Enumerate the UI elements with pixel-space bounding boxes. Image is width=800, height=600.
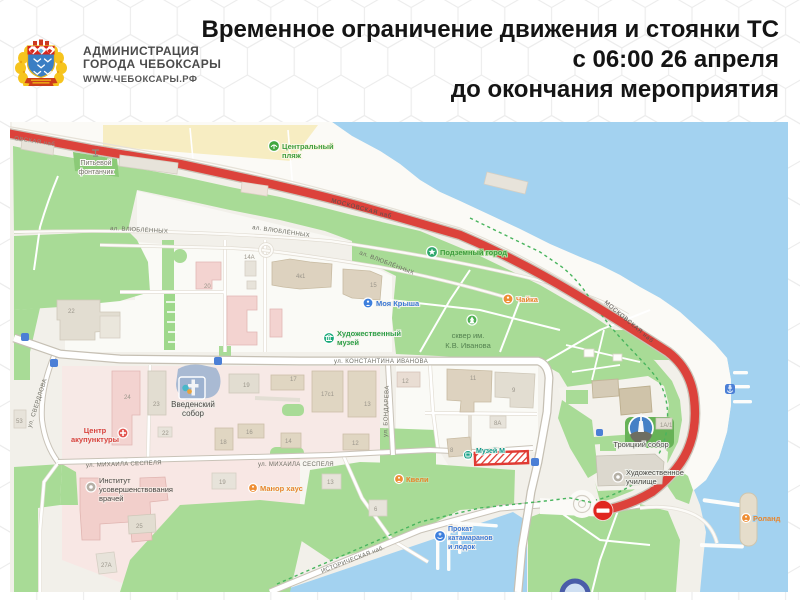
svg-text:музей: музей — [337, 338, 359, 347]
svg-text:13: 13 — [364, 402, 371, 408]
svg-text:Центр: Центр — [84, 426, 107, 435]
svg-text:Прокат: Прокат — [448, 526, 473, 533]
svg-text:Институт: Институт — [99, 476, 131, 485]
svg-text:22: 22 — [68, 309, 75, 315]
svg-text:24: 24 — [124, 395, 131, 401]
svg-text:17: 17 — [290, 377, 297, 383]
svg-text:27А: 27А — [101, 563, 112, 569]
svg-text:ул. МИХАИЛА СЕСПЕЛЯ: ул. МИХАИЛА СЕСПЕЛЯ — [258, 462, 334, 468]
svg-text:училище: училище — [626, 477, 657, 486]
svg-text:19: 19 — [219, 480, 226, 486]
svg-text:Художественный: Художественный — [337, 329, 401, 338]
svg-text:14А: 14А — [244, 255, 255, 261]
svg-text:усовершенствования: усовершенствования — [99, 485, 173, 494]
svg-text:Чайка: Чайка — [516, 295, 539, 304]
svg-text:18: 18 — [220, 440, 227, 446]
svg-text:Введенский: Введенский — [171, 400, 215, 409]
svg-text:12: 12 — [402, 379, 409, 385]
svg-text:фонтанчик: фонтанчик — [78, 169, 114, 176]
svg-text:Квели: Квели — [406, 475, 429, 484]
svg-text:пляж: пляж — [282, 151, 302, 160]
svg-text:15: 15 — [370, 283, 377, 289]
svg-text:Роланд: Роланд — [753, 514, 781, 523]
svg-text:Троицкий собор: Троицкий собор — [613, 440, 668, 449]
svg-text:17с1: 17с1 — [321, 392, 335, 398]
svg-text:53: 53 — [16, 419, 23, 425]
svg-text:Центральный: Центральный — [282, 142, 334, 151]
svg-text:1А/1: 1А/1 — [660, 423, 673, 429]
svg-text:22: 22 — [162, 431, 169, 437]
svg-text:23: 23 — [153, 402, 160, 408]
svg-text:Художественное: Художественное — [626, 468, 684, 477]
svg-text:Манор хаус: Манор хаус — [260, 484, 303, 493]
svg-text:14: 14 — [285, 439, 292, 445]
svg-text:ул. КОНСТАНТИНА ИВАНОВА: ул. КОНСТАНТИНА ИВАНОВА — [334, 359, 428, 365]
svg-text:20: 20 — [204, 284, 211, 290]
svg-text:врачей: врачей — [99, 494, 123, 503]
svg-text:13: 13 — [327, 480, 334, 486]
svg-text:8А: 8А — [494, 421, 501, 427]
svg-text:собор: собор — [182, 409, 205, 418]
svg-text:акупунктуры: акупунктуры — [71, 435, 119, 444]
svg-text:Моя Крыша: Моя Крыша — [376, 299, 420, 308]
svg-text:4к1: 4к1 — [296, 274, 306, 280]
svg-text:11: 11 — [470, 376, 477, 382]
svg-text:12: 12 — [352, 441, 359, 447]
svg-text:сквер им.: сквер им. — [452, 331, 485, 340]
svg-text:и лодок: и лодок — [448, 544, 476, 551]
svg-text:Питьевой: Питьевой — [80, 159, 111, 167]
svg-text:К.В. Иванова: К.В. Иванова — [445, 341, 491, 350]
svg-text:19: 19 — [243, 383, 250, 389]
svg-text:катамаранов: катамаранов — [448, 535, 493, 542]
svg-text:16: 16 — [246, 430, 253, 436]
svg-text:Музей М: Музей М — [476, 447, 505, 455]
svg-text:Подземный город: Подземный город — [440, 248, 507, 257]
svg-text:25: 25 — [136, 524, 143, 530]
